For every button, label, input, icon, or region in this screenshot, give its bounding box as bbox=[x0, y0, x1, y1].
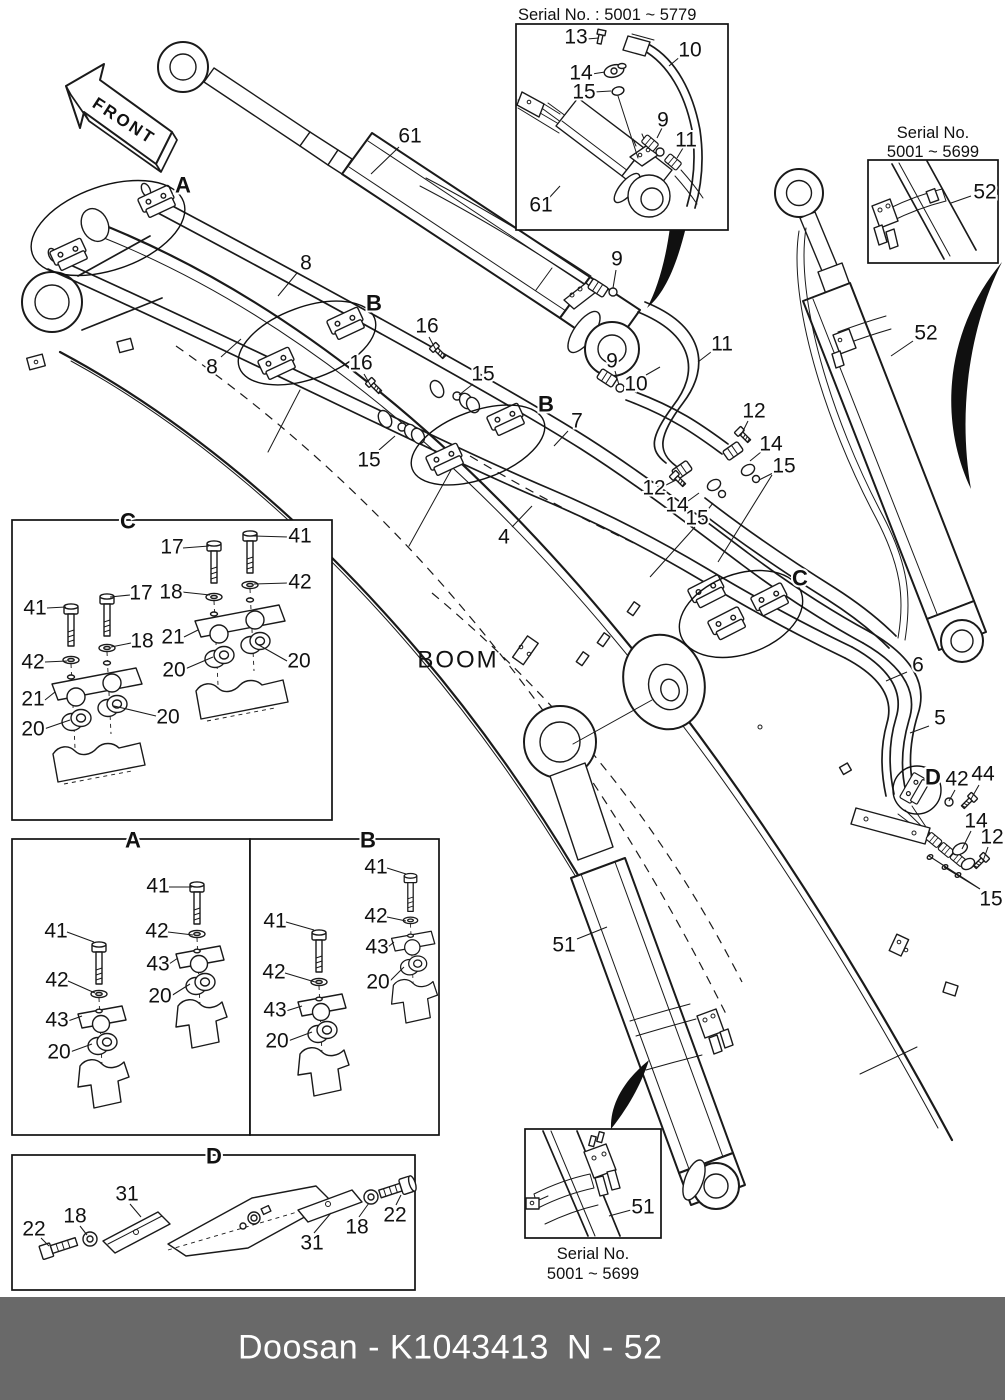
callout-43-61: 43 bbox=[146, 953, 169, 976]
detail-box-b bbox=[250, 839, 439, 1135]
bolt-16-icon bbox=[429, 342, 447, 360]
callout-42-64: 42 bbox=[45, 969, 68, 992]
ellipse-b1 bbox=[227, 285, 387, 402]
callout-41-67: 41 bbox=[364, 856, 387, 879]
callout-51-81: 51 bbox=[631, 1196, 654, 1219]
callout-8-10: 8 bbox=[300, 252, 312, 275]
diagram-canvas: FRONT bbox=[0, 0, 1005, 1297]
callout-14-23: 14 bbox=[759, 433, 783, 456]
callout-41-71: 41 bbox=[263, 910, 286, 933]
callout-20-70: 20 bbox=[366, 971, 389, 994]
section-label-A-6: A bbox=[125, 828, 141, 853]
callout-9-18: 9 bbox=[611, 248, 623, 271]
callout-13-37: 13 bbox=[564, 26, 587, 49]
front-arrow: FRONT bbox=[66, 64, 177, 172]
callout-44-32: 44 bbox=[971, 763, 995, 786]
callout-15-15: 15 bbox=[357, 449, 380, 472]
callout-43-65: 43 bbox=[45, 1009, 68, 1032]
inset-serial-5699-top bbox=[868, 160, 998, 263]
parts-diagram-page: FRONT bbox=[0, 0, 1005, 1400]
callout-42-47: 42 bbox=[288, 571, 311, 594]
callout-31-78: 31 bbox=[300, 1232, 323, 1255]
callout-41-46: 41 bbox=[288, 525, 311, 548]
section-label-B-1: B bbox=[366, 291, 382, 316]
callout-10-40: 10 bbox=[678, 39, 701, 62]
serial-right-title-2: 5001 ~ 5699 bbox=[887, 143, 979, 161]
callout-20-74: 20 bbox=[265, 1030, 288, 1053]
callout-20-57: 20 bbox=[156, 706, 179, 729]
callout-22-75: 22 bbox=[22, 1218, 45, 1241]
callout-16-13: 16 bbox=[349, 352, 372, 375]
callout-6-29: 6 bbox=[912, 654, 924, 677]
callout-52-28: 52 bbox=[914, 322, 937, 345]
swoosh-icon bbox=[647, 227, 686, 308]
section-label-D-8: D bbox=[206, 1144, 222, 1169]
callout-43-69: 43 bbox=[365, 936, 388, 959]
callout-12-34: 12 bbox=[980, 826, 1003, 849]
callout-52-44: 52 bbox=[973, 181, 996, 204]
boss-disc bbox=[573, 624, 717, 744]
inset-serial-5699-bottom bbox=[525, 1129, 661, 1238]
callout-41-59: 41 bbox=[146, 875, 169, 898]
swoosh-icon bbox=[611, 1060, 649, 1129]
callout-10-21: 10 bbox=[624, 373, 647, 396]
callout-15-39: 15 bbox=[572, 81, 595, 104]
callout-43-73: 43 bbox=[263, 999, 286, 1022]
callout-7-16: 7 bbox=[571, 410, 583, 433]
callout-17-45: 17 bbox=[160, 536, 183, 559]
section-label-A-0: A bbox=[175, 173, 191, 198]
callout-51-36: 51 bbox=[552, 934, 575, 957]
callout-20-55: 20 bbox=[162, 659, 185, 682]
callout-12-22: 12 bbox=[742, 400, 765, 423]
callout-18-76: 18 bbox=[63, 1205, 86, 1228]
boom-label: BOOM bbox=[417, 647, 498, 674]
callout-11-20: 11 bbox=[711, 333, 733, 356]
callout-16-12: 16 bbox=[415, 315, 438, 338]
section-label-B-2: B bbox=[538, 392, 554, 417]
callout-61-9: 61 bbox=[398, 125, 421, 148]
callout-12-25: 12 bbox=[642, 477, 665, 500]
callout-41-50: 41 bbox=[23, 597, 46, 620]
section-label-C-5: C bbox=[120, 509, 136, 534]
serial-bottom-title-1: Serial No. bbox=[557, 1245, 629, 1263]
callout-20-66: 20 bbox=[47, 1041, 70, 1064]
callout-21-56: 21 bbox=[21, 688, 44, 711]
callout-5-30: 5 bbox=[934, 707, 946, 730]
callout-42-72: 42 bbox=[262, 961, 285, 984]
callout-21-51: 21 bbox=[161, 626, 184, 649]
serial-bottom-title-2: 5001 ~ 5699 bbox=[547, 1265, 639, 1283]
serial-right-title-1: Serial No. bbox=[897, 124, 969, 142]
swoosh-icon bbox=[951, 262, 1002, 489]
section-label-B-7: B bbox=[360, 828, 376, 853]
serial-top-title: Serial No. : 5001 ~ 5779 bbox=[518, 6, 696, 24]
footer-page-ref: N - 52 bbox=[567, 1328, 663, 1367]
callout-17-49: 17 bbox=[129, 582, 152, 605]
callout-9-19: 9 bbox=[606, 350, 618, 373]
callout-15-35: 15 bbox=[979, 888, 1002, 911]
callout-42-53: 42 bbox=[21, 651, 44, 674]
callout-8-11: 8 bbox=[206, 356, 218, 379]
callout-20-58: 20 bbox=[21, 718, 44, 741]
callout-15-14: 15 bbox=[471, 363, 494, 386]
callout-15-24: 15 bbox=[772, 455, 795, 478]
callout-18-52: 18 bbox=[130, 630, 153, 653]
callout-22-80: 22 bbox=[383, 1204, 406, 1227]
callout-20-62: 20 bbox=[148, 985, 171, 1008]
bolt-44-icon bbox=[960, 792, 978, 810]
callout-18-79: 18 bbox=[345, 1216, 368, 1239]
callout-11-42: 11 bbox=[675, 129, 697, 152]
hoses-10-11 bbox=[626, 302, 760, 498]
callout-18-48: 18 bbox=[159, 581, 182, 604]
callout-42-31: 42 bbox=[945, 768, 968, 791]
callout-4-17: 4 bbox=[498, 526, 510, 549]
callout-61-43: 61 bbox=[529, 194, 552, 217]
callout-20-54: 20 bbox=[287, 650, 310, 673]
callout-9-41: 9 bbox=[657, 109, 669, 132]
footer-brand-part: Doosan - K1043413 bbox=[238, 1328, 549, 1367]
callout-15-27: 15 bbox=[685, 507, 708, 530]
section-label-C-3: C bbox=[792, 566, 808, 591]
section-label-D-4: D bbox=[925, 765, 941, 790]
callout-42-60: 42 bbox=[145, 920, 168, 943]
callout-31-77: 31 bbox=[115, 1183, 138, 1206]
callout-42-68: 42 bbox=[364, 905, 387, 928]
callout-41-63: 41 bbox=[44, 920, 67, 943]
footer-bar: Doosan - K1043413 N - 52 bbox=[0, 1297, 1005, 1400]
